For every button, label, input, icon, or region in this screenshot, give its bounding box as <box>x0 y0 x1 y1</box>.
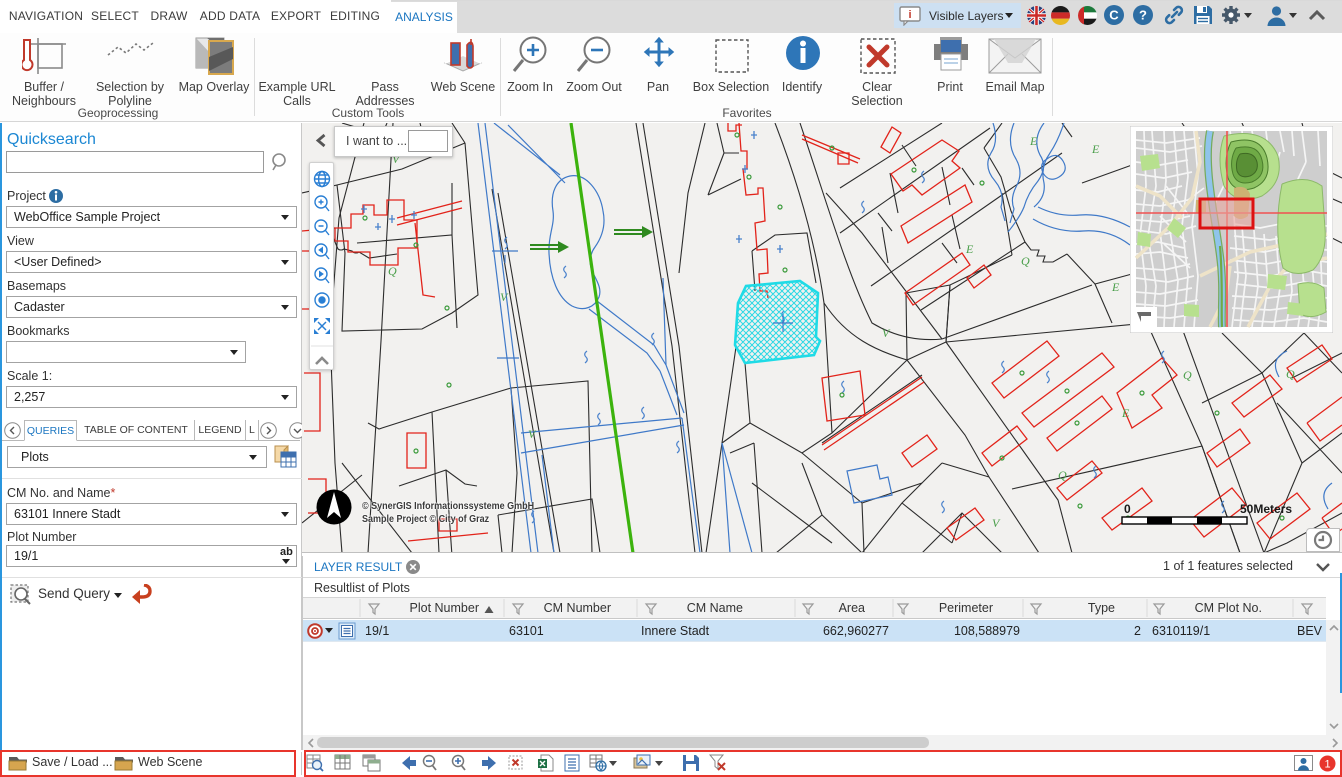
svg-text:V: V <box>882 326 891 340</box>
svg-text:E: E <box>1029 134 1038 148</box>
svg-text:C: C <box>1109 8 1119 23</box>
svg-text:BEV: BEV <box>1297 624 1323 638</box>
svg-text:Innere Stadt: Innere Stadt <box>641 624 710 638</box>
svg-text:CM Name: CM Name <box>687 601 743 615</box>
svg-text:E: E <box>1111 280 1120 294</box>
svg-text:Q: Q <box>1286 367 1295 381</box>
svg-text:Q: Q <box>1058 468 1067 482</box>
svg-text:Q: Q <box>1021 254 1030 268</box>
svg-text:V: V <box>528 427 537 441</box>
svg-text:Area: Area <box>839 601 865 615</box>
svg-text:V: V <box>992 516 1001 530</box>
svg-text:Perimeter: Perimeter <box>939 601 993 615</box>
svg-text:1: 1 <box>1324 759 1330 771</box>
svg-text:662,960277: 662,960277 <box>823 624 889 638</box>
svg-text:19/1: 19/1 <box>365 624 389 638</box>
svg-text:6310119/1: 6310119/1 <box>1152 624 1210 638</box>
svg-text:E: E <box>965 242 974 256</box>
svg-text:i: i <box>908 9 911 21</box>
svg-text:Type: Type <box>1088 601 1115 615</box>
svg-text:50Meters: 50Meters <box>1240 502 1292 516</box>
svg-text:63101: 63101 <box>509 624 544 638</box>
svg-text:?: ? <box>1139 8 1147 23</box>
svg-text:Plot Number: Plot Number <box>410 601 479 615</box>
svg-text:CM Number: CM Number <box>544 601 611 615</box>
svg-text:108,588979: 108,588979 <box>954 624 1020 638</box>
svg-text:CM Plot No.: CM Plot No. <box>1195 601 1262 615</box>
svg-text:0: 0 <box>1124 502 1131 516</box>
svg-text:E: E <box>1091 142 1100 156</box>
svg-text:Q: Q <box>388 264 397 278</box>
svg-text:Q: Q <box>1183 368 1192 382</box>
svg-text:2: 2 <box>1134 624 1141 638</box>
svg-text:E: E <box>1121 406 1130 420</box>
